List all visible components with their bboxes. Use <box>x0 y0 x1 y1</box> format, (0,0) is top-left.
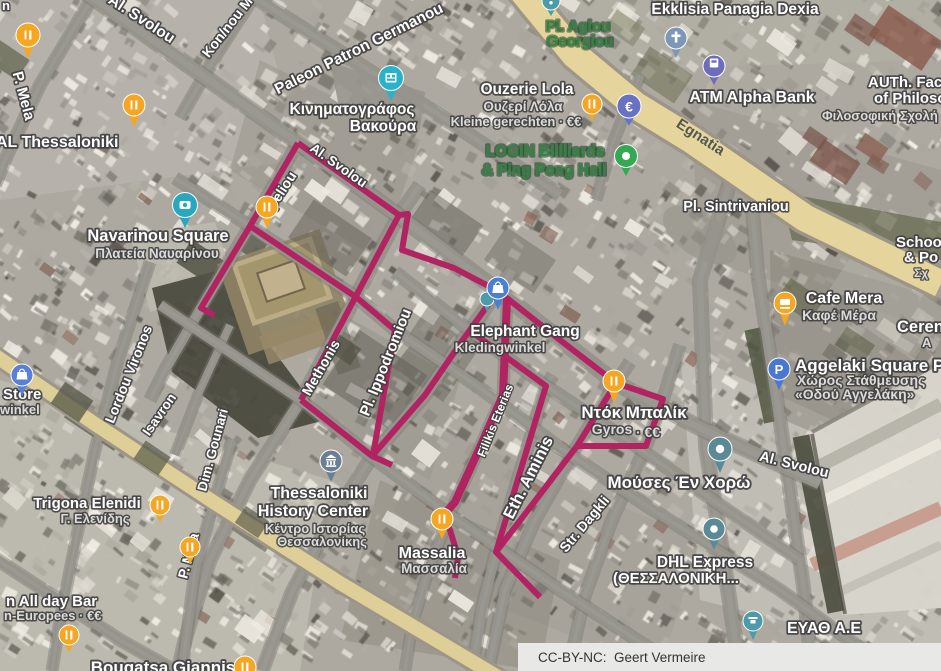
svg-text:Navarinou Square: Navarinou Square <box>87 227 228 245</box>
svg-text:(ΘΕΣΣΑΛΟΝΙΚΗ...: (ΘΕΣΣΑΛΟΝΙΚΗ... <box>613 570 739 587</box>
svg-text:Σχ: Σχ <box>914 266 928 280</box>
svg-text:ATM Alpha Bank: ATM Alpha Bank <box>689 89 814 106</box>
svg-text:AUTh. Fac: AUTh. Fac <box>868 74 941 91</box>
svg-text:n: n <box>2 0 10 13</box>
svg-text:& Po: & Po <box>904 249 938 266</box>
svg-text:DHL Express: DHL Express <box>657 554 753 571</box>
svg-text:n-Europees · €€: n-Europees · €€ <box>4 608 102 623</box>
svg-text:Ouzerie Lola: Ouzerie Lola <box>480 81 573 98</box>
svg-text:CC-BY-NC: Geert Vermeire: CC-BY-NC: Geert Vermeire <box>538 650 706 665</box>
svg-text:History Center: History Center <box>258 503 368 520</box>
svg-text:Trigona Elenidi: Trigona Elenidi <box>33 495 141 512</box>
svg-text:Ουζερί Λόλα: Ουζερί Λόλα <box>483 99 563 114</box>
svg-text:Θεσσαλονίκης: Θεσσαλονίκης <box>277 534 367 549</box>
svg-text:Καφέ Μέρα: Καφέ Μέρα <box>802 307 876 323</box>
svg-text:ΕΥΑΘ Α.Ε: ΕΥΑΘ Α.Ε <box>787 620 861 637</box>
svg-text:winkel: winkel <box>0 402 40 417</box>
svg-text:Ντόκ Μπαλίκ: Ντόκ Μπαλίκ <box>581 403 687 422</box>
svg-text:Ekklisia Panagia Dexia: Ekklisia Panagia Dexia <box>651 1 819 18</box>
svg-text:AL Thessaloniki: AL Thessaloniki <box>0 134 118 151</box>
svg-text:Kleine gerechten · €€: Kleine gerechten · €€ <box>451 114 582 129</box>
svg-text:Cafe Mera: Cafe Mera <box>806 290 883 307</box>
svg-text:●: ● <box>549 0 554 7</box>
svg-text:Massalia: Massalia <box>399 545 466 562</box>
svg-text:Α: Α <box>922 335 932 350</box>
svg-text:€: € <box>625 99 633 115</box>
svg-text:Pl. Sintrivaniou: Pl. Sintrivaniou <box>683 199 789 215</box>
svg-text:Ceren: Ceren <box>897 318 941 336</box>
svg-text:Georgiou: Georgiou <box>547 33 614 50</box>
svg-text:· €€: · €€ <box>636 424 660 440</box>
svg-text:Gyros: Gyros <box>592 421 633 437</box>
svg-text:LOGIN Billliards: LOGIN Billliards <box>486 143 605 160</box>
svg-text:Βακούρα: Βακούρα <box>350 118 417 135</box>
svg-text:Μασσαλία: Μασσαλία <box>401 561 468 576</box>
svg-text:Bougatsa Giannis: Bougatsa Giannis <box>91 658 236 671</box>
svg-text:«Οδού Αγγελάκη»: «Οδού Αγγελάκη» <box>795 386 915 402</box>
svg-text:P: P <box>775 362 784 377</box>
svg-text:Elephant Gang: Elephant Gang <box>470 323 579 340</box>
svg-text:Γ. Ελενίδης: Γ. Ελενίδης <box>60 511 129 526</box>
svg-text:Κινηματογράφος: Κινηματογράφος <box>290 101 415 118</box>
svg-text:& Ping Pong Hall: & Ping Pong Hall <box>482 162 607 179</box>
svg-text:Φιλοσοφική Σχολή: Φιλοσοφική Σχολή <box>822 108 938 123</box>
svg-text:Kledingwinkel: Kledingwinkel <box>455 340 546 355</box>
svg-text:Πλατεία Ναυαρίνου: Πλατεία Ναυαρίνου <box>95 246 219 261</box>
svg-text:of Philoso: of Philoso <box>874 90 941 107</box>
svg-text:Thessaloniki: Thessaloniki <box>271 485 368 502</box>
svg-text:Μούσες Έν Χορώ: Μούσες Έν Χορώ <box>608 473 751 492</box>
